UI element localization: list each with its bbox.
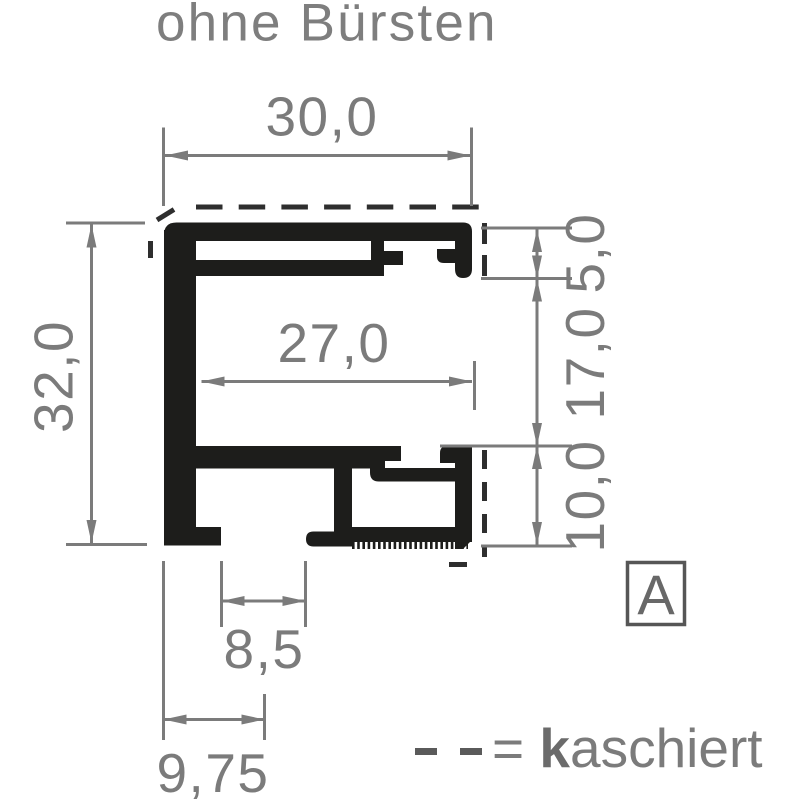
svg-text:30,0: 30,0 bbox=[265, 86, 378, 148]
svg-text:ohne Bürsten: ohne Bürsten bbox=[156, 0, 498, 53]
svg-text:= kaschiert: = kaschiert bbox=[492, 717, 763, 779]
svg-text:32,0: 32,0 bbox=[23, 320, 85, 433]
svg-text:8,5: 8,5 bbox=[224, 618, 305, 680]
svg-text:10,0: 10,0 bbox=[554, 439, 616, 552]
svg-text:27,0: 27,0 bbox=[277, 312, 390, 374]
svg-text:9,75: 9,75 bbox=[156, 742, 269, 800]
svg-text:A: A bbox=[637, 563, 675, 626]
svg-text:5,0: 5,0 bbox=[554, 213, 616, 294]
svg-text:17,0: 17,0 bbox=[554, 306, 616, 419]
